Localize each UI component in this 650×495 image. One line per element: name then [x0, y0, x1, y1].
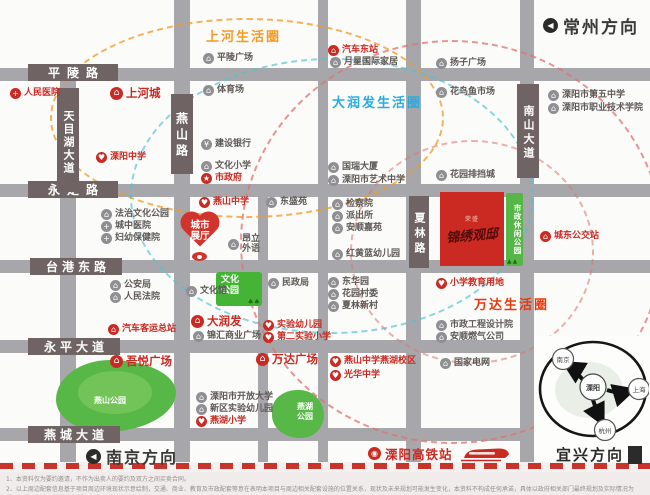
poi-label: 市政府	[215, 173, 242, 183]
direction-nanjing-label: 南京方向	[106, 444, 178, 468]
mall-icon: ⌂	[110, 355, 123, 368]
hsr-station: ◉ 溧阳高铁站	[368, 444, 511, 463]
poi-20: ⌂昂立 外语	[228, 234, 260, 255]
intercity-hub-diagram: 溧阳 南京 上海 杭州	[537, 338, 649, 444]
hospital-icon: +	[101, 233, 112, 244]
building-icon: ⌂	[266, 197, 277, 208]
poi-label: 月星国际家居	[344, 57, 398, 67]
disclaimer: 1、本资料仅为要约邀请，不作为出卖人的要约及双方之间买卖合同。 2、以上周边配套…	[0, 472, 650, 495]
pin-icon: ♥	[330, 370, 341, 381]
city-block	[534, 273, 650, 340]
poi-45: ⌂万达广场	[256, 353, 318, 366]
building-icon: ⌂	[548, 90, 559, 101]
poi-25: ⌂夏林新村	[328, 301, 378, 312]
arrow-left-icon: ◀	[86, 449, 101, 464]
building-icon: ⌂	[201, 161, 212, 172]
building-icon: ⌂	[332, 249, 343, 260]
poi-11: ⌂花园排挡城	[436, 170, 495, 181]
poi-12: ⌂东盛苑	[266, 197, 307, 208]
poi-26: ⌂锦汇商业广场	[193, 331, 261, 342]
poi-22: ⌂民政局	[268, 278, 309, 289]
pin-icon: ♥	[263, 320, 274, 331]
poi-label: 小学教育用地	[450, 278, 504, 288]
arrow-right-icon: ▶	[628, 446, 642, 464]
pin-icon: ♥	[436, 278, 447, 289]
city-block	[0, 0, 174, 68]
poi-label: 汽车东站	[342, 45, 378, 55]
yanhu-park: 燕湖 公园	[272, 390, 324, 438]
poi-label: 东盛苑	[280, 197, 307, 207]
city-block	[0, 197, 60, 260]
road-xialin: 夏林路	[409, 196, 429, 268]
poi-label: 扬子广场	[450, 58, 486, 68]
poi-13: ⌂检察院	[332, 199, 373, 210]
poi-label: 实验幼儿园	[277, 320, 322, 330]
poi-label: 公安局	[124, 280, 151, 290]
tree-icon: ♠♠	[247, 298, 260, 306]
poi-14: ⌂派出所	[332, 211, 373, 222]
yanshan-park-label: 燕山公园	[94, 396, 126, 406]
poi-27: ⌂公安局	[110, 280, 151, 291]
direction-yixing: 宜兴方向 ▶	[556, 444, 642, 465]
city-block	[534, 197, 650, 260]
building-icon: ⌂	[101, 209, 112, 220]
project-logo: 荣盛	[465, 214, 479, 223]
yanhu-park-label: 燕湖 公园	[297, 402, 313, 421]
poi-label: 城中医院	[115, 221, 151, 231]
city-block	[268, 441, 318, 462]
poi-label: 花园村委	[342, 289, 378, 299]
poi-label: 花鸟鱼市场	[450, 87, 495, 97]
building-icon: ⌂	[436, 320, 447, 331]
poi-0: ⌂平陵广场	[203, 53, 253, 64]
poi-label: 新区实验幼儿园	[210, 404, 273, 414]
poi-18: +城中医院	[101, 221, 151, 232]
building-icon: ⌂	[328, 301, 339, 312]
poi-label: 溧阳市第五中学	[562, 90, 625, 100]
city-block	[0, 441, 60, 462]
building-icon: ⌂	[203, 53, 214, 64]
svg-text:杭州: 杭州	[599, 426, 612, 435]
poi-38: ★市政府	[201, 173, 242, 184]
poi-24: ⌂花园村委	[328, 289, 378, 300]
building-icon: ⌂	[228, 239, 239, 250]
hospital-icon: +	[10, 88, 21, 99]
poi-label: 人民医院	[24, 88, 60, 98]
road-yancheng: 燕城大道	[28, 426, 120, 443]
svg-text:上海: 上海	[633, 385, 647, 394]
pin-icon: ♥	[196, 416, 207, 427]
poi-label: 红黄蓝幼儿园	[346, 249, 400, 259]
road-nanshan: 南山大道	[517, 84, 539, 178]
building-icon: ⌂	[332, 223, 343, 234]
poi-label: 光华中学	[344, 370, 380, 380]
poi-label: 溧阳中学	[110, 152, 146, 162]
poi-label: 文化小学	[215, 161, 251, 171]
svg-text:南京: 南京	[557, 355, 571, 364]
poi-36: ⌂汽车东站	[328, 45, 378, 56]
poi-label: 燕山中学	[213, 197, 249, 207]
poi-label: 国瑞大厦	[342, 162, 378, 172]
poi-label: 第二实验小学	[277, 332, 331, 342]
poi-15: ⌂安顺嘉苑	[332, 223, 382, 234]
poi-23: ⌂东华园	[328, 277, 369, 288]
building-icon: ⌂	[268, 278, 279, 289]
poi-label: 汽车客运总站	[122, 324, 176, 334]
direction-changzhou-label: 常州方向	[563, 13, 639, 38]
bus-icon: ⌂	[540, 231, 551, 242]
building-icon: ⌂	[332, 199, 343, 210]
building-icon: ⌂	[196, 392, 207, 403]
poi-31: ⌂市政工程设计院	[436, 320, 513, 331]
poi-6: ⌂溧阳市职业技术学院	[548, 103, 643, 114]
building-icon: ⌂	[548, 103, 559, 114]
poi-32: ⌂安顺燃气公司	[436, 332, 504, 343]
road-yongping: 永平大道	[28, 338, 120, 355]
mall-icon: ⌂	[256, 353, 269, 366]
poi-37: ♥溧阳中学	[96, 152, 146, 163]
poi-label: 燕山中学燕湖校区	[344, 356, 416, 366]
building-icon: ⌂	[332, 211, 343, 222]
hsr-station-label: 溧阳高铁站	[385, 444, 453, 463]
poi-label: 妇幼保健院	[115, 233, 160, 243]
poi-35: ⌂上河城	[110, 87, 161, 100]
project-name: 锦绣观邸	[445, 223, 498, 246]
building-icon: ⌂	[186, 286, 197, 297]
project-block: 荣盛 锦绣观邸	[440, 192, 504, 266]
poi-41: ♥实验幼儿园	[263, 320, 322, 331]
poi-label: 派出所	[346, 211, 373, 221]
city-hall-pin: 城市 展厅	[178, 211, 222, 255]
shanghe-life-circle-label: 上河生活圈	[206, 26, 281, 45]
poi-label: 人民法院	[124, 292, 160, 302]
poi-label: 上河城	[126, 87, 161, 100]
bank-icon: ¥	[201, 139, 212, 150]
poi-50: ⌂城东公交站	[540, 231, 599, 242]
poi-label: 检察院	[346, 199, 373, 209]
building-icon: ⌂	[328, 175, 339, 186]
poi-33: ⌂国家电网	[440, 358, 490, 369]
road-taigangdong: 台港东路	[30, 258, 122, 275]
poi-49: ♥小学教育用地	[436, 278, 504, 289]
building-icon: ⌂	[193, 331, 204, 342]
poi-16: ⌂红黄蓝幼儿园	[332, 249, 400, 260]
building-icon: ⌂	[328, 277, 339, 288]
poi-label: 大润发	[207, 315, 242, 328]
poi-28: ⌂人民法院	[110, 292, 160, 303]
wanda-life-circle-label: 万达生活圈	[474, 294, 549, 313]
poi-label: 燕湖小学	[210, 416, 246, 426]
direction-nanjing: ◀ 南京方向	[86, 444, 178, 468]
road-yanshan: 燕山路	[171, 94, 193, 174]
train-icon	[461, 445, 511, 463]
building-icon: ⌂	[436, 87, 447, 98]
building-icon: ⌂	[328, 289, 339, 300]
poi-48: ♥燕湖小学	[196, 416, 246, 427]
poi-label: 文化馆	[200, 286, 227, 296]
poi-3: ⌂扬子广场	[436, 58, 486, 69]
disclaimer-line-2: 2、以上周边配套信息基于项目周边环境现状示意绘制，交通、商业、教育及市政配套等意…	[6, 485, 644, 495]
poi-label: 安顺燃气公司	[450, 332, 504, 342]
building-icon: ⌂	[203, 85, 214, 96]
road-pingling: 平陵路	[28, 64, 118, 81]
bus-icon: ⌂	[108, 324, 119, 335]
darunfa-life-circle-label: 大润发生活圈	[332, 92, 422, 111]
poi-label: 溧阳市职业技术学院	[562, 103, 643, 113]
poi-5: ⌂溧阳市第五中学	[548, 90, 625, 101]
poi-label: 市政工程设计院	[450, 320, 513, 330]
poi-43: ⌂汽车客运总站	[108, 324, 176, 335]
poi-label: 万达广场	[272, 353, 318, 366]
building-icon: ⌂	[436, 170, 447, 181]
building-icon: ⌂	[110, 280, 121, 291]
mall-icon: ⌂	[110, 87, 123, 100]
hsr-icon: ◉	[368, 447, 381, 460]
poi-39: ♥燕山中学	[199, 197, 249, 208]
poi-label: 安顺嘉苑	[346, 223, 382, 233]
location-map: 平陵路 永定路 台港东路 永平大道 燕城大道 天目湖大道 燕山路 夏林路 南山大…	[0, 0, 650, 495]
poi-label: 东华园	[342, 277, 369, 287]
building-icon: ⌂	[436, 58, 447, 69]
poi-label: 体育场	[217, 85, 244, 95]
mall-icon: ⌂	[191, 315, 204, 328]
poi-label: 吾悦广场	[126, 355, 172, 368]
arrow-left-icon: ◀	[543, 18, 558, 33]
pin-icon: ♥	[199, 197, 210, 208]
poi-30: ⌂新区实验幼儿园	[196, 404, 273, 415]
poi-10: ⌂溧阳市艺术中学	[328, 175, 405, 186]
bus-icon: ⌂	[328, 45, 339, 56]
svg-text:溧阳: 溧阳	[586, 383, 600, 392]
city-block	[190, 441, 258, 462]
poi-29: ⌂溧阳市开放大学	[196, 392, 273, 403]
poi-4: ⌂花鸟鱼市场	[436, 87, 495, 98]
building-icon: ⌂	[330, 57, 341, 68]
building-icon: ⌂	[328, 162, 339, 173]
city-block	[0, 273, 60, 340]
poi-label: 国家电网	[454, 358, 490, 368]
pin-icon: ♥	[96, 152, 107, 163]
poi-40: ⌂大润发	[191, 315, 242, 328]
poi-47: ♥光华中学	[330, 370, 380, 381]
hospital-icon: +	[101, 221, 112, 232]
poi-17: ⌂法治文化公园	[101, 209, 169, 220]
poi-label: 昂立 外语	[242, 234, 260, 255]
poi-7: ¥建设银行	[201, 139, 251, 150]
poi-42: ♥第二实验小学	[263, 332, 331, 343]
poi-label: 溧阳市艺术中学	[342, 175, 405, 185]
poi-label: 夏林新村	[342, 301, 378, 311]
government-icon: ★	[201, 173, 212, 184]
poi-44: ⌂吾悦广场	[110, 355, 172, 368]
poi-label: 法治文化公园	[115, 209, 169, 219]
poi-2: ⌂体育场	[203, 85, 244, 96]
poi-label: 民政局	[282, 278, 309, 288]
city-hall-pin-label: 城市 展厅	[178, 221, 222, 243]
city-block	[0, 353, 60, 428]
poi-8: ⌂文化小学	[201, 161, 251, 172]
building-icon: ⌂	[196, 404, 207, 415]
park-lawn	[78, 371, 152, 414]
direction-yixing-label: 宜兴方向	[556, 444, 624, 465]
building-icon: ⌂	[110, 292, 121, 303]
poi-label: 锦汇商业广场	[207, 331, 261, 341]
poi-21: ⌂文化馆	[186, 286, 227, 297]
poi-label: 平陵广场	[217, 53, 253, 63]
direction-changzhou: ◀ 常州方向	[543, 13, 639, 38]
poi-19: +妇幼保健院	[101, 233, 160, 244]
poi-label: 城东公交站	[554, 231, 599, 241]
pin-icon: ♥	[330, 356, 341, 367]
poi-9: ⌂国瑞大厦	[328, 162, 378, 173]
poi-label: 建设银行	[215, 139, 251, 149]
building-icon: ⌂	[436, 332, 447, 343]
municipal-leisure-park: 市政休闲公园	[506, 193, 523, 266]
poi-46: ♥燕山中学燕湖校区	[330, 356, 416, 367]
road-tianmuhu: 天目湖大道	[57, 88, 79, 192]
poi-label: 花园排挡城	[450, 170, 495, 180]
building-icon: ⌂	[440, 358, 451, 369]
poi-label: 溧阳市开放大学	[210, 392, 273, 402]
disclaimer-line-1: 1、本资料仅为要约邀请，不作为出卖人的要约及双方之间买卖合同。	[6, 475, 644, 485]
poi-34: +人民医院	[10, 88, 60, 99]
pin-icon: ♥	[263, 332, 274, 343]
poi-1: ⌂月星国际家居	[330, 57, 398, 68]
